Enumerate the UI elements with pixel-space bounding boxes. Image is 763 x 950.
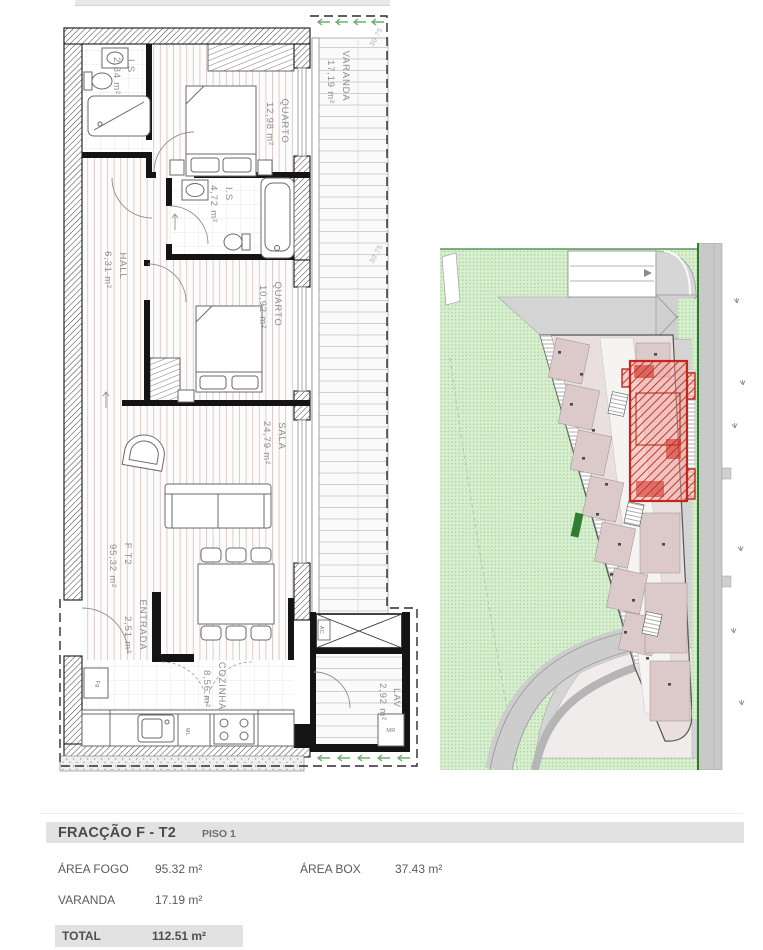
fridge-label: Fg bbox=[94, 680, 100, 687]
varanda-label: VARANDA bbox=[58, 893, 115, 907]
room-area-is1: 2,84 m² bbox=[111, 57, 122, 95]
washing-machine-label: ML bbox=[184, 728, 190, 736]
room-area-cozinha: 8,56 m² bbox=[201, 670, 212, 708]
stove bbox=[214, 714, 254, 744]
room-label-is1: I.S bbox=[125, 59, 136, 73]
room-label-quarto2: QUARTO bbox=[272, 281, 283, 326]
exterior-pavement bbox=[60, 756, 304, 771]
balcony-windows bbox=[298, 68, 306, 563]
wardrobe-quarto2 bbox=[150, 358, 180, 404]
table-top-rule bbox=[40, 813, 743, 814]
room-label-sala: SALA bbox=[276, 422, 287, 450]
highlighted-fraction-f bbox=[622, 361, 695, 501]
room-label-entrada: ENTRADA bbox=[137, 600, 148, 651]
room-label-lav: LAV bbox=[391, 688, 402, 708]
fraction-label: F T2 bbox=[122, 543, 133, 566]
room-label-varanda: VARANDA bbox=[340, 51, 351, 102]
area-row-1: ÁREA FOGO 95.32 m² ÁREA BOX 37.43 m² bbox=[58, 862, 708, 878]
floor-label: PISO 1 bbox=[202, 828, 236, 840]
fraction-header: FRACÇÃO F - T2 PISO 1 bbox=[46, 822, 744, 843]
plant-icon bbox=[731, 298, 745, 705]
area-box-label: ÁREA BOX bbox=[300, 862, 361, 876]
toilet bbox=[242, 234, 250, 250]
side-road bbox=[698, 243, 731, 770]
room-area-quarto1: 12,98 m² bbox=[264, 102, 275, 146]
washing-machine bbox=[178, 714, 210, 746]
toilet bbox=[84, 72, 92, 90]
floor-plan-drawing: I.S 2,84 m² QUARTO 12,98 m² I.S 4,72 m² … bbox=[58, 8, 420, 780]
area-row-2: VARANDA 17.19 m² bbox=[58, 893, 708, 909]
room-label-cozinha: COZINHA bbox=[216, 662, 227, 710]
varanda-deck bbox=[312, 38, 388, 616]
site-plan-drawing bbox=[440, 243, 763, 770]
water-heater-label: MR bbox=[386, 728, 395, 734]
site-plan bbox=[440, 243, 763, 775]
room-area-lav: 2,92 m² bbox=[377, 683, 388, 721]
room-area-entrada: 2,51 m² bbox=[122, 616, 133, 654]
room-label-quarto1: QUARTO bbox=[279, 98, 290, 143]
room-area-sala: 24,79 m² bbox=[261, 421, 272, 465]
floor-plan: I.S 2,84 m² QUARTO 12,98 m² I.S 4,72 m² … bbox=[58, 8, 420, 785]
total-value: 112.51 m² bbox=[152, 929, 206, 943]
room-label-is2: I.S bbox=[223, 187, 234, 201]
ac-label: AC bbox=[318, 626, 324, 634]
lawn-patch bbox=[678, 299, 698, 339]
room-area-hall: 6,31 m² bbox=[102, 251, 113, 289]
adjacent-structure-edge bbox=[75, 0, 390, 6]
room-area-is2: 4,72 m² bbox=[208, 185, 219, 223]
fraction-area: 95,32 m² bbox=[107, 544, 118, 588]
varanda-value: 17.19 m² bbox=[155, 893, 202, 907]
wardrobe-quarto1 bbox=[208, 44, 294, 71]
area-box-value: 37.43 m² bbox=[395, 862, 442, 876]
total-label: TOTAL bbox=[62, 929, 101, 943]
area-fogo-value: 95.32 m² bbox=[155, 862, 202, 876]
area-fogo-label: ÁREA FOGO bbox=[58, 862, 129, 876]
total-row: TOTAL 112.51 m² bbox=[55, 925, 243, 947]
room-area-varanda: 17,19 m² bbox=[325, 60, 336, 104]
fraction-title: FRACÇÃO F - T2 bbox=[58, 825, 176, 841]
ac-shaft bbox=[316, 614, 402, 648]
fraction-sheet-page: I.S 2,84 m² QUARTO 12,98 m² I.S 4,72 m² … bbox=[0, 0, 763, 950]
dining-table bbox=[198, 564, 274, 624]
room-area-quarto2: 10,92 m² bbox=[257, 285, 268, 329]
room-label-hall: HALL bbox=[117, 253, 128, 280]
